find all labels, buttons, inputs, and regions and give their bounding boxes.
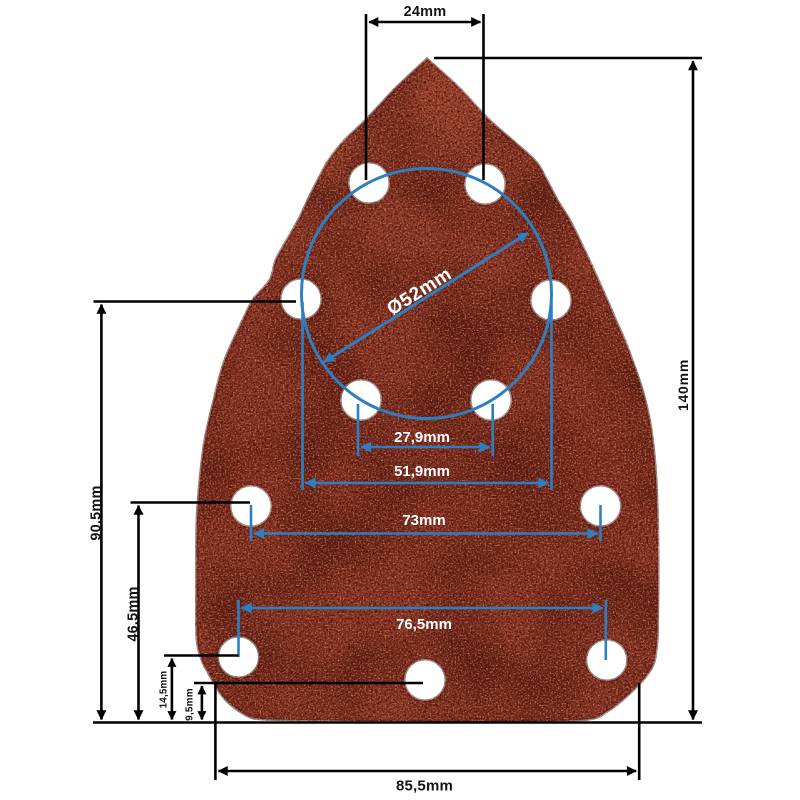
- svg-text:76,5mm: 76,5mm: [396, 616, 452, 633]
- svg-text:14,5mm: 14,5mm: [159, 671, 170, 709]
- svg-text:51,9mm: 51,9mm: [394, 463, 450, 480]
- svg-text:140mm: 140mm: [675, 359, 691, 411]
- svg-text:9,5mm: 9,5mm: [185, 688, 196, 721]
- svg-text:27,9mm: 27,9mm: [394, 429, 450, 446]
- svg-text:46,5mm: 46,5mm: [125, 586, 141, 641]
- svg-text:24mm: 24mm: [404, 4, 447, 20]
- svg-text:73mm: 73mm: [402, 512, 445, 529]
- svg-text:85,5mm: 85,5mm: [396, 778, 453, 795]
- svg-text:90,5mm: 90,5mm: [89, 485, 105, 540]
